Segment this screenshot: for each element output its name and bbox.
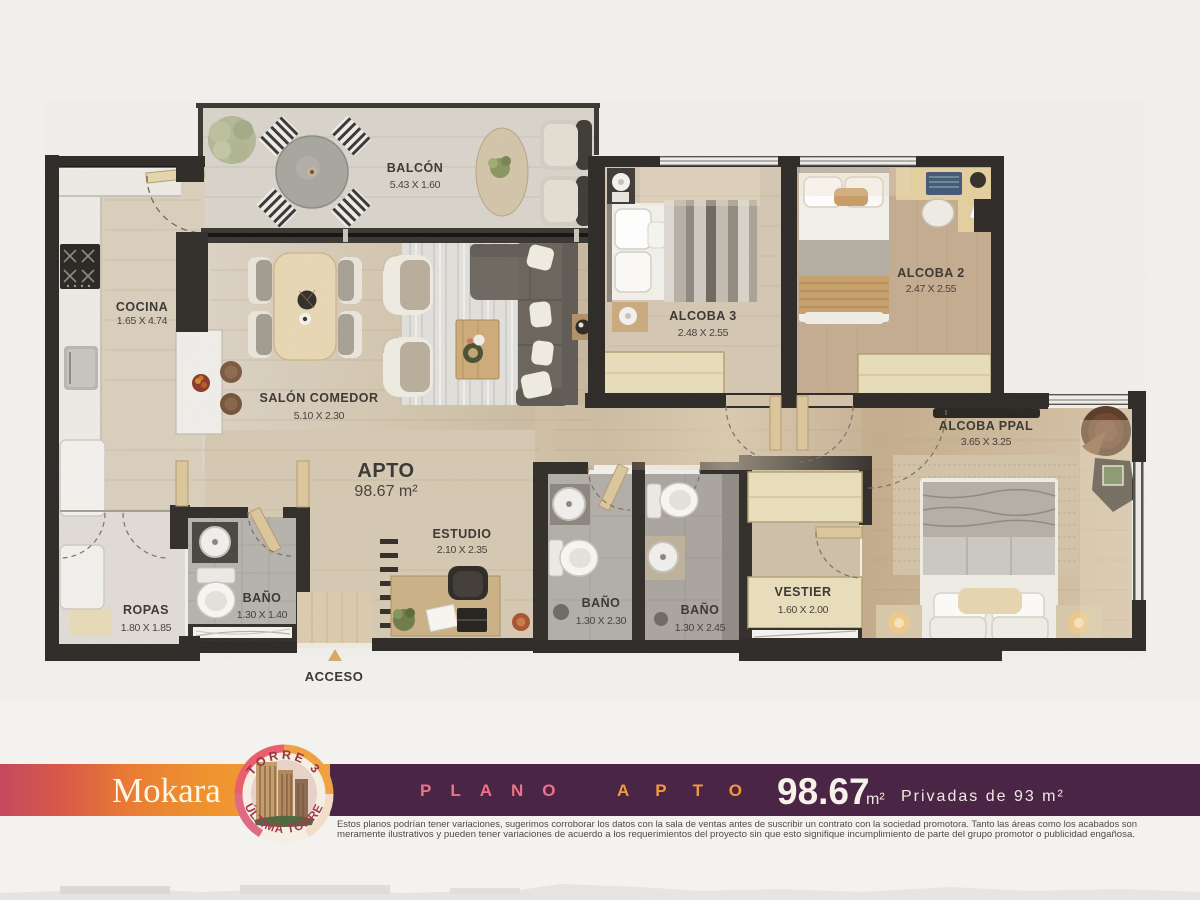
svg-text:Estos planos podrían tener var: Estos planos podrían tener variaciones, … bbox=[337, 819, 1137, 829]
svg-text:Privadas de 93 m²: Privadas de 93 m² bbox=[901, 788, 1065, 805]
svg-text:PLANO: PLANO bbox=[420, 781, 575, 800]
svg-text:ACCESO: ACCESO bbox=[305, 669, 364, 684]
svg-text:Mokara: Mokara bbox=[112, 771, 221, 810]
svg-text:m²: m² bbox=[866, 791, 885, 808]
svg-text:meramente ilustrativos y puede: meramente ilustrativos y pueden tener va… bbox=[337, 829, 1135, 839]
svg-text:98.67: 98.67 bbox=[777, 771, 870, 812]
svg-text:APTO: APTO bbox=[617, 781, 768, 800]
